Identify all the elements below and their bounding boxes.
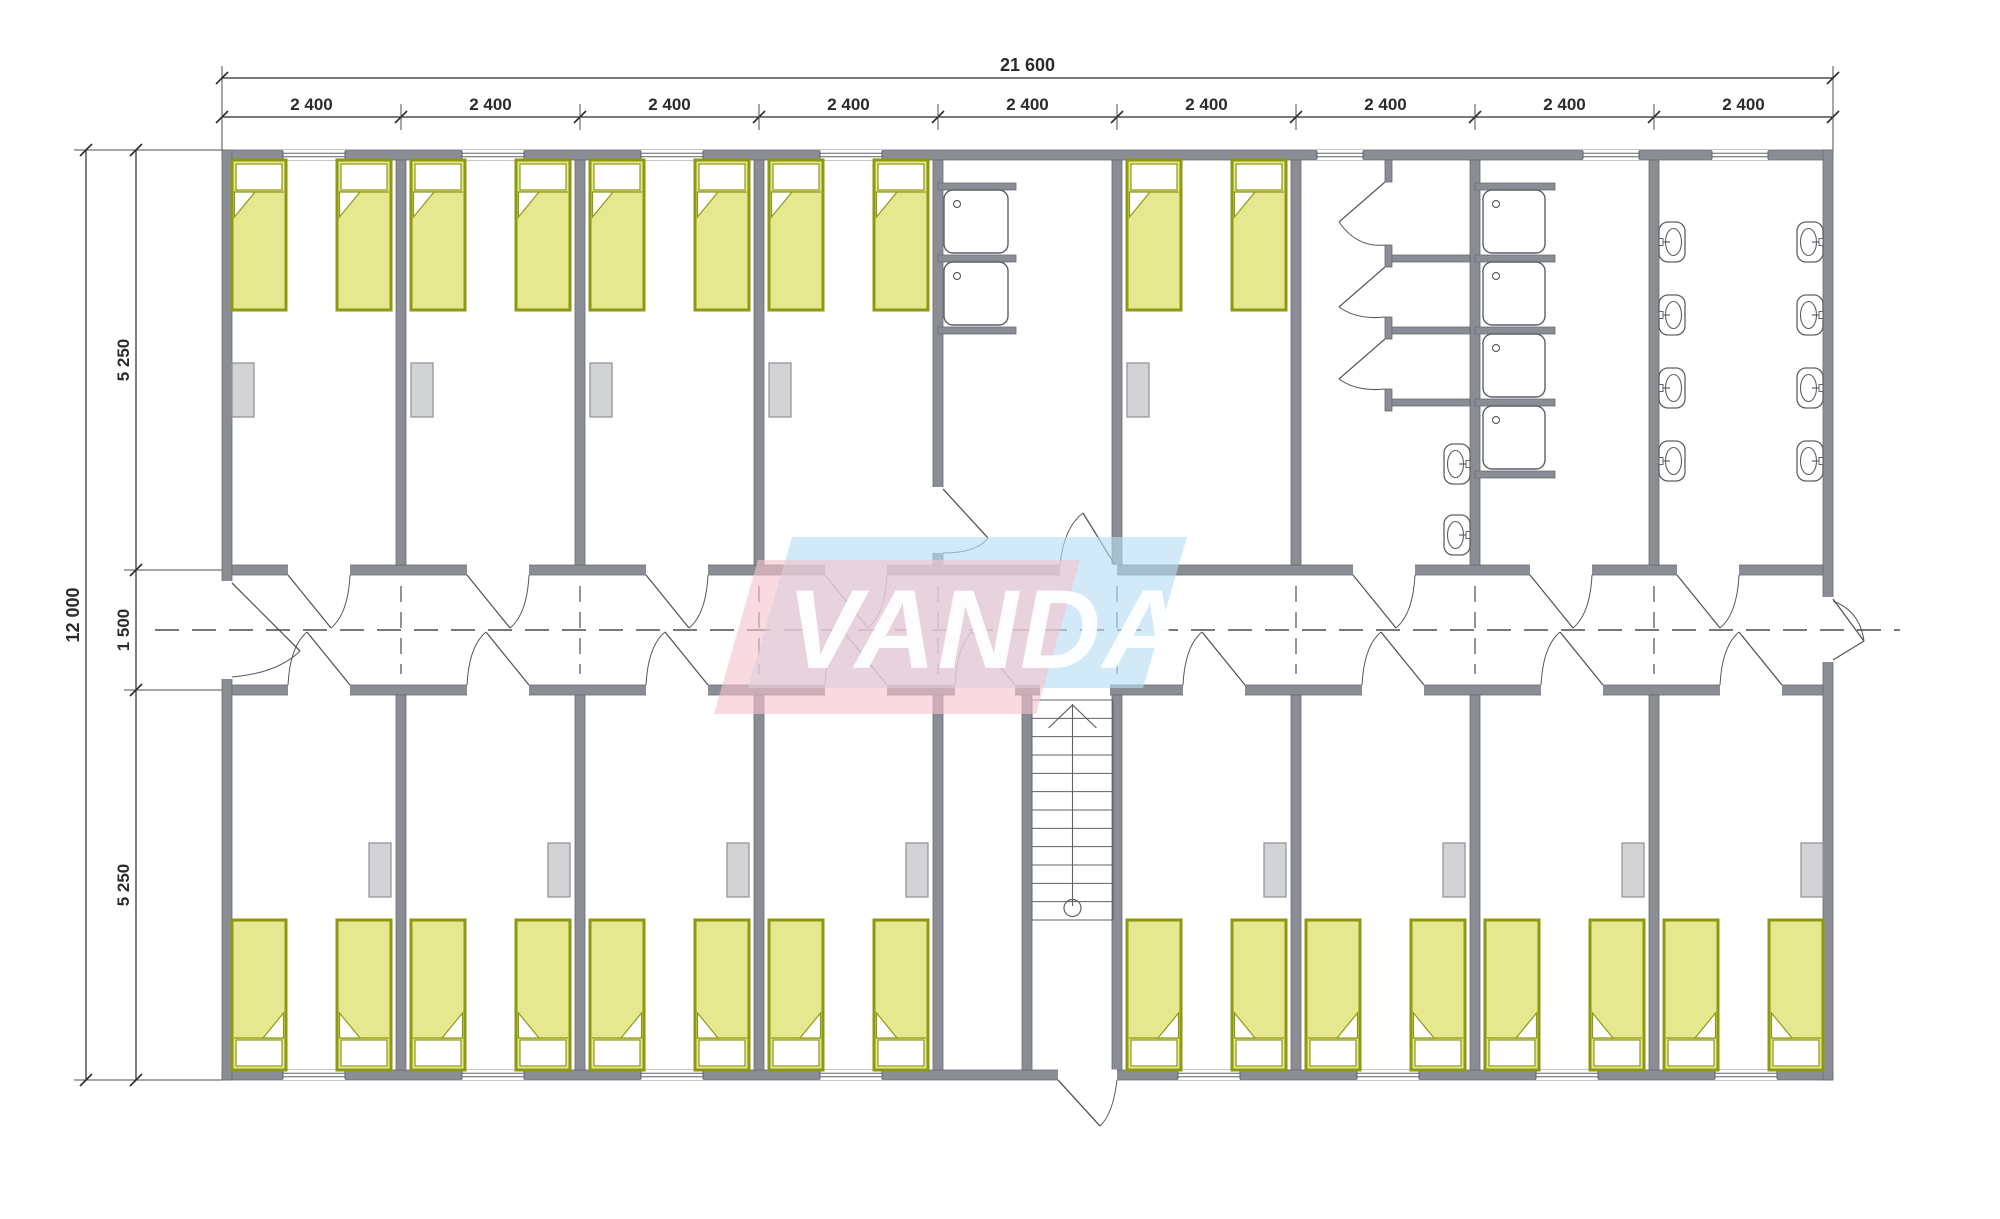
pillow bbox=[699, 1040, 745, 1066]
bed bbox=[874, 160, 928, 310]
dimension-label-module: 2 400 bbox=[469, 95, 512, 114]
bed bbox=[1590, 920, 1644, 1070]
pillow bbox=[878, 1040, 924, 1066]
floor-plan-drawing: 21 6002 4002 4002 4002 4002 4002 4002 40… bbox=[0, 0, 2000, 1219]
wc-stall-front-wall bbox=[1385, 160, 1392, 182]
wc-stall-front-wall bbox=[1385, 245, 1392, 267]
sink-unit bbox=[944, 190, 1008, 253]
room-divider-wall-top bbox=[1649, 160, 1659, 565]
room-divider-wall-bottom bbox=[1470, 695, 1480, 1070]
door-leaf bbox=[232, 583, 300, 651]
door-opening bbox=[646, 565, 708, 576]
pillow bbox=[1236, 1040, 1282, 1066]
bed bbox=[590, 920, 644, 1070]
door-leaf bbox=[1339, 182, 1385, 222]
dimension-label-module: 2 400 bbox=[648, 95, 691, 114]
door-opening bbox=[1720, 685, 1782, 696]
wardrobe bbox=[727, 843, 749, 897]
shower-niche-partition bbox=[1475, 399, 1555, 406]
wash-basin bbox=[1797, 295, 1823, 335]
door-leaf bbox=[646, 575, 689, 628]
pillow bbox=[520, 1040, 566, 1066]
door-opening bbox=[1541, 685, 1603, 696]
wardrobe bbox=[548, 843, 570, 897]
dimension-label-module: 2 400 bbox=[1006, 95, 1049, 114]
bed bbox=[1664, 920, 1718, 1070]
door-leaf bbox=[1339, 339, 1385, 379]
door-swing-arc bbox=[1339, 379, 1385, 390]
room-divider-wall-top bbox=[396, 160, 406, 565]
window-top bbox=[1583, 150, 1639, 160]
pillow bbox=[1236, 164, 1282, 190]
door-swing-arc bbox=[1362, 632, 1381, 685]
pillow bbox=[341, 1040, 387, 1066]
bed bbox=[1232, 920, 1286, 1070]
door-opening bbox=[288, 565, 350, 576]
door-opening bbox=[1353, 565, 1415, 576]
door-leaf bbox=[1202, 632, 1245, 685]
bed bbox=[1127, 160, 1181, 310]
wardrobe bbox=[1443, 843, 1465, 897]
wash-basin bbox=[1444, 515, 1470, 555]
shower-niche-partition bbox=[1475, 255, 1555, 262]
door-leaf bbox=[1339, 267, 1385, 307]
pillow bbox=[415, 164, 461, 190]
door-leaf bbox=[1560, 632, 1603, 685]
dimension-label-corridor: 1 500 bbox=[114, 609, 133, 652]
door-opening bbox=[1530, 565, 1592, 576]
room-divider-wall-bottom bbox=[575, 695, 585, 1070]
bed bbox=[1485, 920, 1539, 1070]
bed bbox=[516, 160, 570, 310]
bed bbox=[411, 160, 465, 310]
door-swing-arc bbox=[1720, 632, 1739, 685]
door-swing-arc bbox=[1720, 575, 1739, 628]
wardrobe bbox=[1127, 363, 1149, 417]
shower-niche-partition bbox=[1475, 471, 1555, 478]
bed bbox=[232, 920, 286, 1070]
door-leaf bbox=[1833, 641, 1864, 660]
dimension-label-module: 2 400 bbox=[1364, 95, 1407, 114]
dimension-label-module: 2 400 bbox=[827, 95, 870, 114]
door-leaf bbox=[1739, 632, 1782, 685]
wash-basin bbox=[1444, 444, 1470, 484]
door-swing-arc bbox=[1573, 575, 1592, 628]
pillow bbox=[1489, 1040, 1535, 1066]
window-top bbox=[1317, 150, 1363, 160]
bed bbox=[1769, 920, 1823, 1070]
dimension-label-upper-rooms: 5 250 bbox=[114, 339, 133, 382]
pillow bbox=[878, 164, 924, 190]
pillow bbox=[1594, 1040, 1640, 1066]
bed bbox=[1306, 920, 1360, 1070]
pillow bbox=[773, 1040, 819, 1066]
pillow bbox=[594, 164, 640, 190]
door-leaf bbox=[288, 575, 331, 628]
pillow bbox=[699, 164, 745, 190]
bed bbox=[769, 160, 823, 310]
dimension-label-total-width: 21 600 bbox=[1000, 55, 1055, 75]
wash-basin bbox=[1659, 368, 1685, 408]
door-opening bbox=[1677, 565, 1739, 576]
wardrobe bbox=[1801, 843, 1823, 897]
bed bbox=[337, 920, 391, 1070]
door-leaf bbox=[1530, 575, 1573, 628]
pillow bbox=[520, 164, 566, 190]
bed bbox=[695, 160, 749, 310]
stair-enclosure-wall bbox=[1022, 695, 1032, 1070]
bed bbox=[695, 920, 749, 1070]
tap-base bbox=[1659, 239, 1663, 246]
shower-tray bbox=[1483, 190, 1545, 253]
room-divider-wall-bottom bbox=[933, 695, 943, 1070]
door-leaf bbox=[307, 632, 350, 685]
wardrobe bbox=[1622, 843, 1644, 897]
pillow bbox=[1131, 1040, 1177, 1066]
door-leaf bbox=[1058, 1080, 1100, 1126]
shower-niche-partition bbox=[1475, 183, 1555, 190]
bed bbox=[1232, 160, 1286, 310]
bed bbox=[411, 920, 465, 1070]
door-swing-arc bbox=[232, 651, 300, 677]
shower-tray bbox=[1483, 334, 1545, 397]
wardrobe bbox=[232, 363, 254, 417]
door-opening bbox=[467, 685, 529, 696]
door-leaf bbox=[1381, 632, 1424, 685]
door-leaf bbox=[1677, 575, 1720, 628]
bed bbox=[232, 160, 286, 310]
wash-basin bbox=[1797, 222, 1823, 262]
door-leaf bbox=[1833, 599, 1864, 641]
door-leaf bbox=[467, 575, 510, 628]
wardrobe bbox=[1264, 843, 1286, 897]
door-leaf bbox=[1353, 575, 1396, 628]
pillow bbox=[1415, 1040, 1461, 1066]
door-swing-arc bbox=[1339, 307, 1385, 318]
door-swing-arc bbox=[1396, 575, 1415, 628]
wc-stall-front-wall bbox=[1385, 317, 1392, 339]
wc-stall-partition bbox=[1392, 327, 1470, 334]
dimension-label-module: 2 400 bbox=[1185, 95, 1228, 114]
tap-base bbox=[1819, 385, 1823, 392]
door-opening bbox=[467, 565, 529, 576]
room-divider-wall-top bbox=[1112, 160, 1122, 565]
room-divider-wall-bottom bbox=[1291, 695, 1301, 1070]
wash-basin bbox=[1659, 441, 1685, 481]
watermark: VANDA bbox=[714, 537, 1187, 714]
wc-stall-partition bbox=[1392, 255, 1470, 262]
dimension-label-module: 2 400 bbox=[290, 95, 333, 114]
wardrobe bbox=[769, 363, 791, 417]
wash-basin bbox=[1797, 368, 1823, 408]
sink-unit bbox=[944, 262, 1008, 325]
pillow bbox=[1668, 1040, 1714, 1066]
tap-base bbox=[1659, 458, 1663, 465]
wc-stall-front-wall bbox=[1385, 389, 1392, 411]
bed bbox=[874, 920, 928, 1070]
wardrobe bbox=[590, 363, 612, 417]
room-divider-wall-bottom bbox=[1649, 695, 1659, 1070]
room-divider-wall-top bbox=[1291, 160, 1301, 565]
wardrobe bbox=[369, 843, 391, 897]
watermark-text: VANDA bbox=[787, 567, 1185, 692]
pillow bbox=[1131, 164, 1177, 190]
tap-base bbox=[1659, 385, 1663, 392]
room-divider-wall-top bbox=[754, 160, 764, 565]
tap-base bbox=[1819, 239, 1823, 246]
shower-tray bbox=[1483, 406, 1545, 469]
room-divider-wall-top bbox=[575, 160, 585, 565]
wardrobe bbox=[411, 363, 433, 417]
floorplan-page: 21 6002 4002 4002 4002 4002 4002 4002 40… bbox=[0, 0, 2000, 1219]
shower-tray bbox=[1483, 262, 1545, 325]
pillow bbox=[1310, 1040, 1356, 1066]
door-leaf bbox=[943, 489, 988, 538]
pillow bbox=[773, 164, 819, 190]
wash-basin bbox=[1659, 222, 1685, 262]
pillow bbox=[415, 1040, 461, 1066]
door-swing-arc bbox=[1183, 632, 1202, 685]
sink-niche-partition bbox=[938, 183, 1016, 190]
dimension-label-total-height: 12 000 bbox=[63, 587, 83, 642]
pillow bbox=[236, 1040, 282, 1066]
dimension-label-module: 2 400 bbox=[1543, 95, 1586, 114]
tap-base bbox=[1819, 312, 1823, 319]
window-top bbox=[1712, 150, 1768, 160]
door-leaf bbox=[665, 632, 708, 685]
pillow bbox=[594, 1040, 640, 1066]
pillow bbox=[1773, 1040, 1819, 1066]
door-swing-arc bbox=[331, 575, 350, 628]
door-swing-arc bbox=[646, 632, 665, 685]
pillow bbox=[341, 164, 387, 190]
door-swing-arc bbox=[510, 575, 529, 628]
staircase bbox=[1032, 700, 1113, 920]
tap-base bbox=[1466, 461, 1470, 468]
dimension-label-lower-rooms: 5 250 bbox=[114, 864, 133, 907]
door-swing-arc bbox=[467, 632, 486, 685]
bed bbox=[337, 160, 391, 310]
door-swing-arc bbox=[1541, 632, 1560, 685]
dimension-label-module: 2 400 bbox=[1722, 95, 1765, 114]
sink-niche-partition bbox=[938, 255, 1016, 262]
door-opening bbox=[646, 685, 708, 696]
wash-basin bbox=[1659, 295, 1685, 335]
door-swing-arc bbox=[1100, 1080, 1117, 1126]
tap-base bbox=[1819, 458, 1823, 465]
bed bbox=[1411, 920, 1465, 1070]
pillow bbox=[236, 164, 282, 190]
wc-stall-partition bbox=[1392, 399, 1470, 406]
wash-basin bbox=[1797, 441, 1823, 481]
shower-niche-partition bbox=[1475, 327, 1555, 334]
door-opening bbox=[1362, 685, 1424, 696]
sink-niche-partition bbox=[938, 327, 1016, 334]
room-divider-wall-top bbox=[1470, 160, 1480, 565]
door-opening bbox=[1183, 685, 1245, 696]
door-swing-arc bbox=[1339, 222, 1385, 245]
bed bbox=[590, 160, 644, 310]
tap-base bbox=[1659, 312, 1663, 319]
wardrobe bbox=[906, 843, 928, 897]
door-leaf bbox=[486, 632, 529, 685]
room-divider-wall-bottom bbox=[754, 695, 764, 1070]
door-opening bbox=[1058, 1070, 1117, 1081]
bed bbox=[769, 920, 823, 1070]
door-swing-arc bbox=[689, 575, 708, 628]
room-divider-wall-bottom bbox=[396, 695, 406, 1070]
door-opening bbox=[288, 685, 350, 696]
bed bbox=[516, 920, 570, 1070]
tap-base bbox=[1466, 532, 1470, 539]
bed bbox=[1127, 920, 1181, 1070]
